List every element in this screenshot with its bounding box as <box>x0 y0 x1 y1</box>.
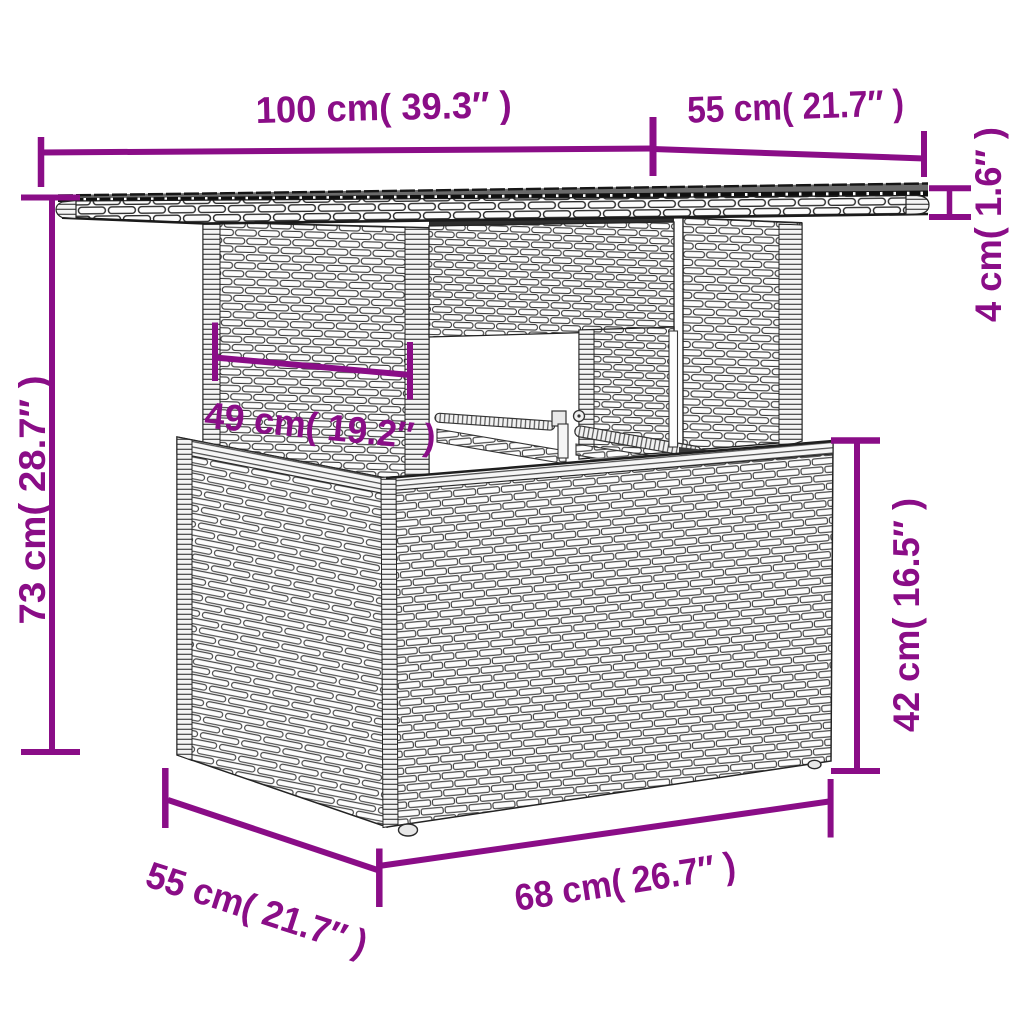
svg-text:55 cm( 21.7″ ): 55 cm( 21.7″ ) <box>686 81 904 131</box>
svg-text:42 cm( 16.5″ ): 42 cm( 16.5″ ) <box>885 498 927 732</box>
svg-text:100 cm( 39.3″ ): 100 cm( 39.3″ ) <box>255 83 512 131</box>
svg-text:73 cm( 28.7″ ): 73 cm( 28.7″ ) <box>11 376 53 625</box>
svg-text:4 cm( 1.6″ ): 4 cm( 1.6″ ) <box>967 127 1009 322</box>
